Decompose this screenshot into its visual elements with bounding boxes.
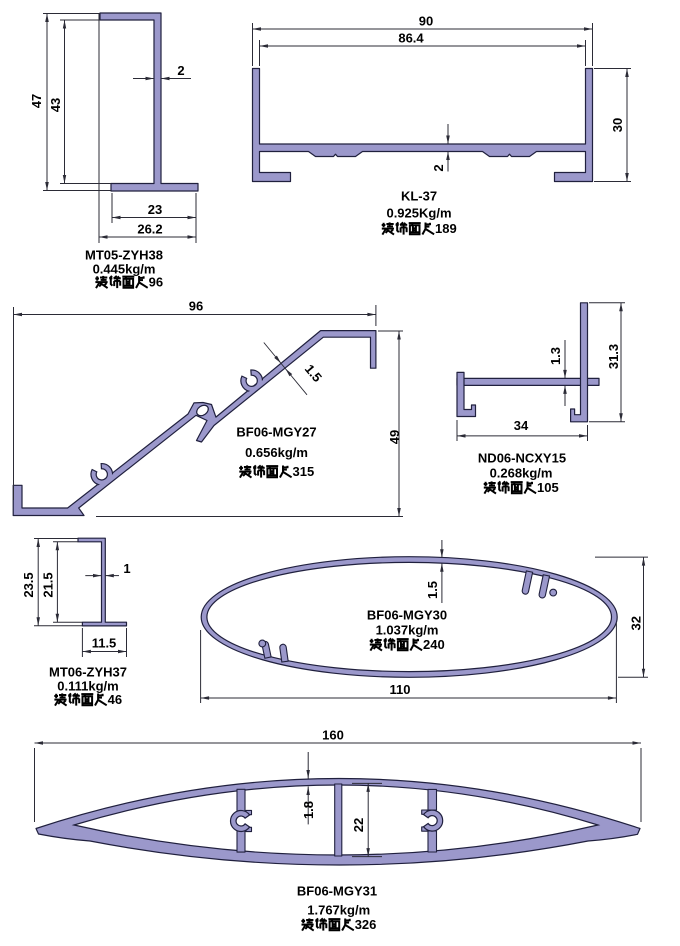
- svg-text:BF06-MGY31: BF06-MGY31: [297, 884, 377, 899]
- svg-text:49: 49: [387, 430, 402, 444]
- svg-text:1.8: 1.8: [301, 801, 316, 819]
- svg-text:11.5: 11.5: [92, 636, 117, 651]
- svg-text:32: 32: [628, 616, 643, 630]
- svg-text:26.2: 26.2: [137, 222, 162, 237]
- svg-text:105: 105: [537, 480, 559, 495]
- svg-text:90: 90: [419, 14, 433, 29]
- svg-text:0.445kg/m: 0.445kg/m: [93, 262, 156, 277]
- svg-text:BF06-MGY30: BF06-MGY30: [367, 608, 447, 623]
- svg-text:0.925Kg/m: 0.925Kg/m: [386, 206, 451, 221]
- svg-text:1.767kg/m: 1.767kg/m: [307, 903, 370, 918]
- svg-text:189: 189: [435, 221, 457, 236]
- svg-text:22: 22: [351, 818, 366, 832]
- svg-text:47: 47: [29, 94, 44, 108]
- svg-text:240: 240: [423, 637, 445, 652]
- svg-text:MT06-ZYH37: MT06-ZYH37: [49, 665, 127, 680]
- svg-text:86.4: 86.4: [398, 31, 424, 46]
- svg-text:315: 315: [293, 464, 315, 479]
- svg-text:KL-37: KL-37: [401, 189, 437, 204]
- svg-text:0.268kg/m: 0.268kg/m: [490, 466, 553, 481]
- svg-text:1.3: 1.3: [548, 347, 563, 365]
- svg-text:46: 46: [108, 692, 122, 707]
- svg-text:1.5: 1.5: [302, 361, 325, 384]
- svg-text:96: 96: [149, 275, 163, 290]
- svg-text:160: 160: [322, 728, 344, 743]
- svg-text:0.656kg/m: 0.656kg/m: [245, 445, 308, 460]
- svg-text:31.3: 31.3: [606, 344, 621, 369]
- svg-text:30: 30: [610, 118, 625, 132]
- svg-text:110: 110: [390, 682, 411, 697]
- svg-text:326: 326: [355, 917, 377, 932]
- svg-text:34: 34: [514, 418, 529, 433]
- svg-text:MT05-ZYH38: MT05-ZYH38: [85, 248, 163, 263]
- svg-text:1.5: 1.5: [425, 581, 440, 599]
- svg-text:23.5: 23.5: [21, 572, 36, 597]
- svg-text:43: 43: [48, 98, 63, 112]
- svg-text:23: 23: [148, 202, 162, 217]
- svg-text:1.037kg/m: 1.037kg/m: [376, 623, 439, 638]
- svg-text:21.5: 21.5: [41, 572, 56, 597]
- svg-text:ND06-NCXY15: ND06-NCXY15: [478, 451, 566, 466]
- svg-text:1: 1: [123, 561, 130, 576]
- svg-text:BF06-MGY27: BF06-MGY27: [236, 425, 316, 440]
- svg-text:2: 2: [431, 164, 446, 171]
- svg-text:2: 2: [177, 63, 184, 78]
- svg-text:96: 96: [189, 299, 203, 314]
